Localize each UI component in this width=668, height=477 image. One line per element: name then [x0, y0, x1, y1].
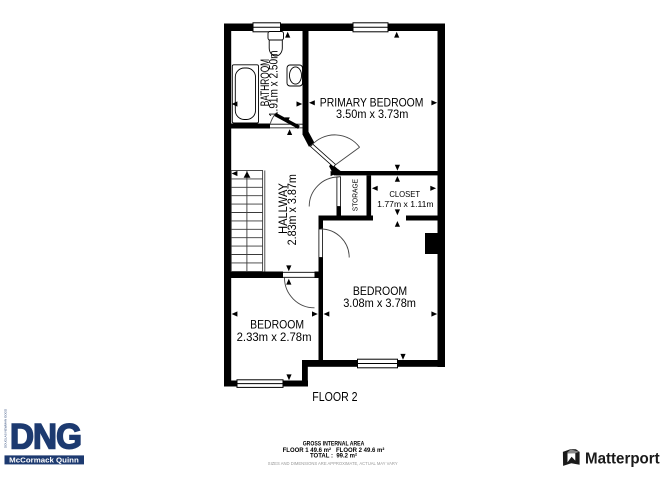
- svg-text:McCormack Quinn: McCormack Quinn: [9, 456, 79, 465]
- svg-text:PRIMARY BEDROOM: PRIMARY BEDROOM: [320, 96, 424, 110]
- svg-text:SIZES AND DIMENSIONS ARE APPRO: SIZES AND DIMENSIONS ARE APPROXIMATE, AC…: [268, 461, 398, 467]
- svg-text:BEDROOM: BEDROOM: [353, 284, 407, 298]
- svg-text:3.50m x 3.73m: 3.50m x 3.73m: [336, 109, 408, 121]
- svg-text:3.08m x 3.78m: 3.08m x 3.78m: [343, 298, 416, 310]
- svg-text:TOTAL : 99.2 m²: TOTAL : 99.2 m²: [310, 453, 357, 460]
- svg-text:1.91m x 2.50m: 1.91m x 2.50m: [268, 51, 280, 118]
- svg-text:CLOSET: CLOSET: [389, 189, 420, 199]
- svg-text:GROSS INTERNAL AREA: GROSS INTERNAL AREA: [303, 442, 365, 448]
- svg-text:STORAGE: STORAGE: [352, 179, 359, 212]
- svg-text:2.83m x 3.87m: 2.83m x 3.87m: [287, 174, 299, 245]
- svg-text:1.77m x 1.11m: 1.77m x 1.11m: [377, 200, 434, 209]
- svg-text:DNG: DNG: [10, 418, 81, 457]
- svg-text:BEDROOM: BEDROOM: [250, 317, 304, 331]
- svg-text:DOUGLAS NEWMAN GOOD: DOUGLAS NEWMAN GOOD: [4, 408, 8, 448]
- svg-text:Matterport: Matterport: [585, 450, 660, 467]
- svg-text:FLOOR 2: FLOOR 2: [312, 389, 357, 404]
- svg-text:2.33m x 2.78m: 2.33m x 2.78m: [237, 332, 312, 344]
